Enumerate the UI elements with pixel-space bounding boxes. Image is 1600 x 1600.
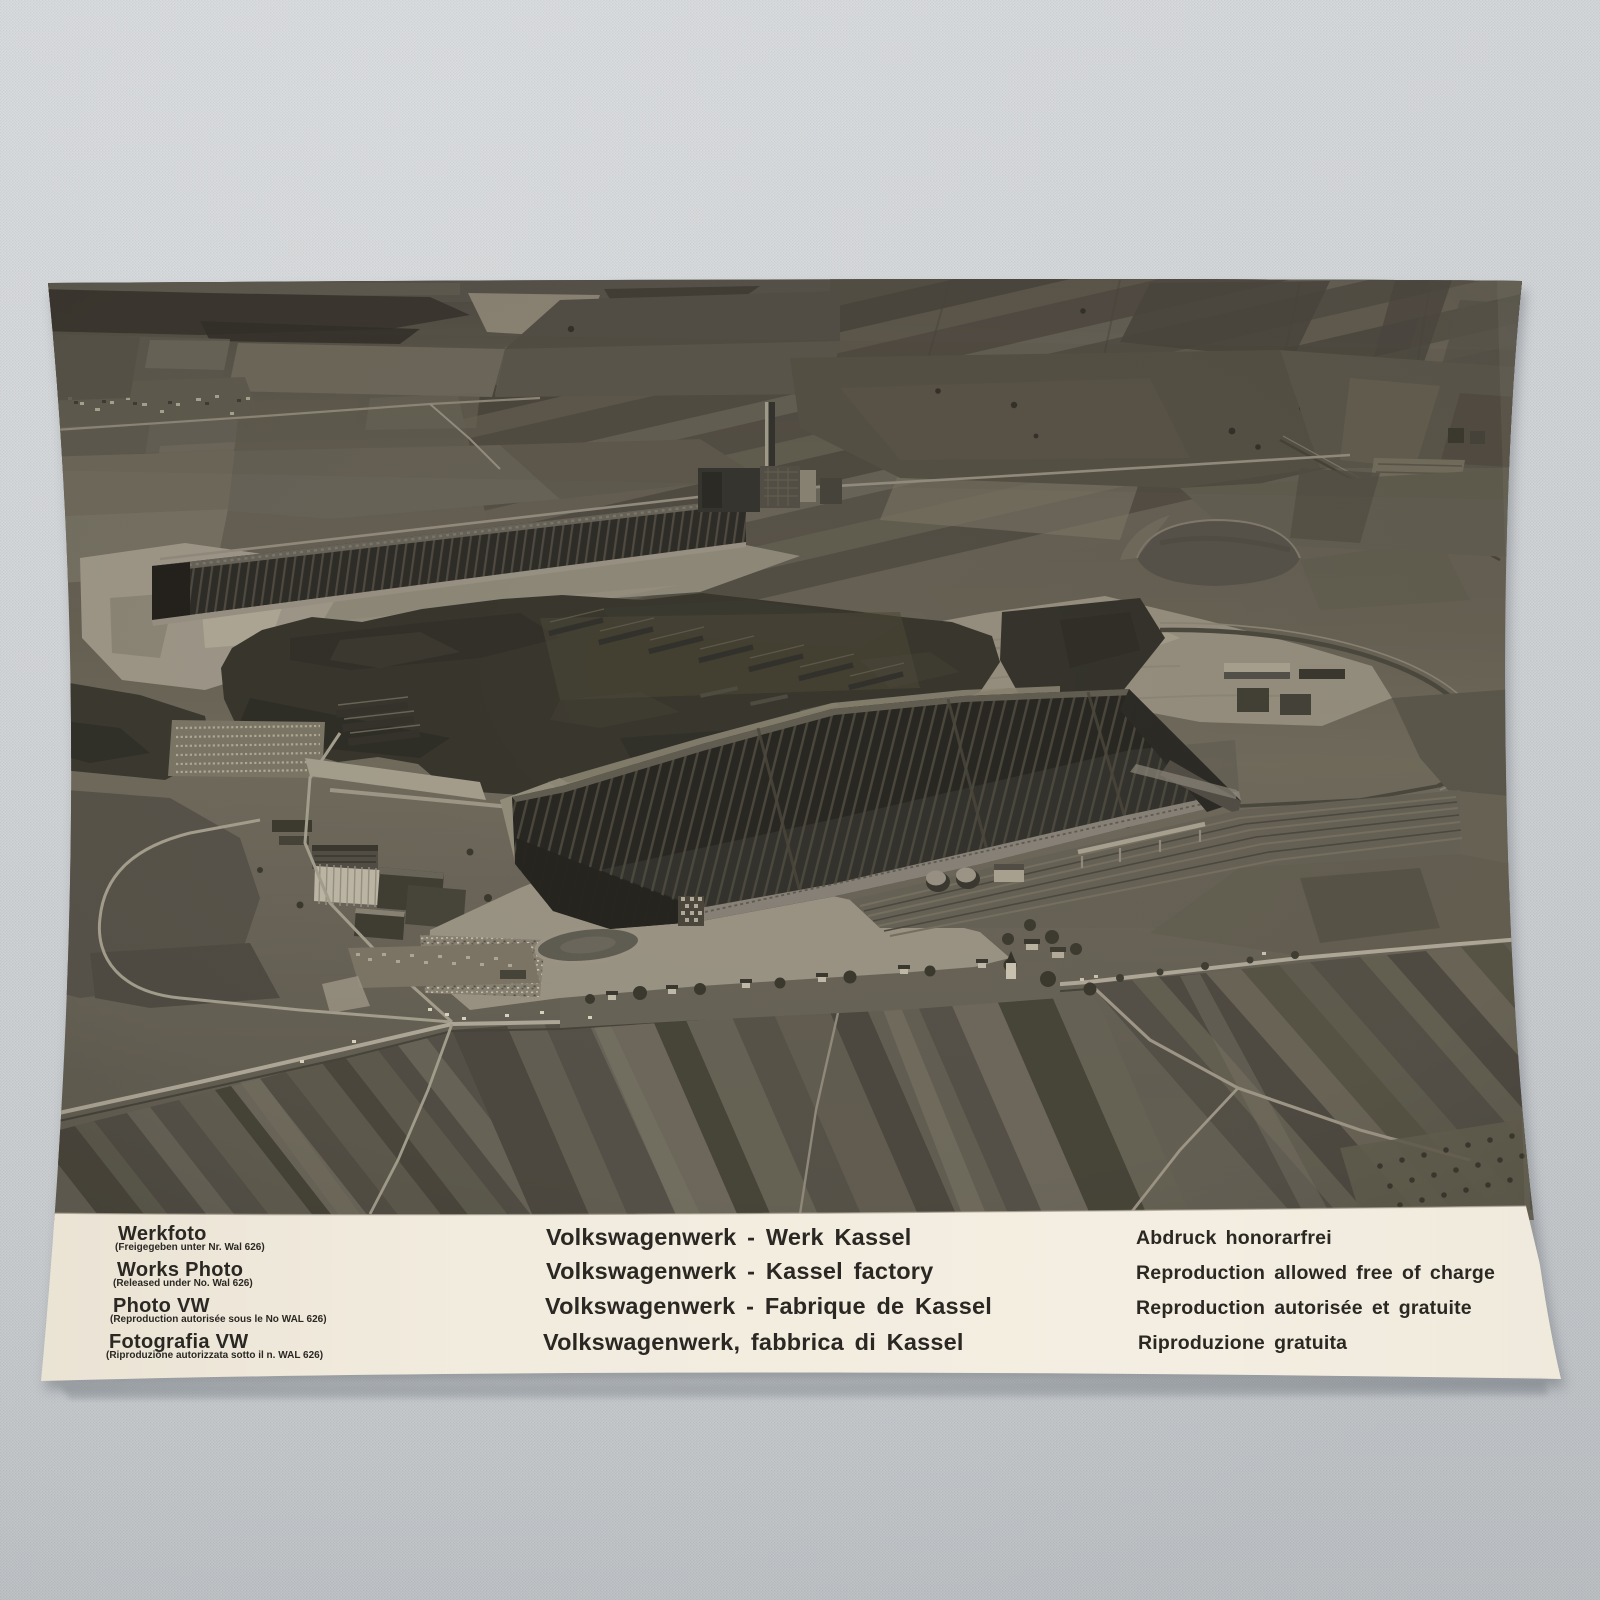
svg-text:Reproduction autorisée et grat: Reproduction autorisée et gratuite (1136, 1297, 1472, 1319)
svg-text:Reproduction allowed free of c: Reproduction allowed free of charge (1136, 1262, 1495, 1284)
svg-text:Volkswagenwerk - Werk Kassel: Volkswagenwerk - Werk Kassel (546, 1224, 911, 1250)
svg-text:(Released under No. Wal 626): (Released under No. Wal 626) (113, 1278, 253, 1289)
svg-text:Riproduzione gratuita: Riproduzione gratuita (1138, 1332, 1347, 1354)
svg-text:Volkswagenwerk - Fabrique de K: Volkswagenwerk - Fabrique de Kassel (545, 1293, 992, 1319)
svg-text:(Reproduction autorisée sous l: (Reproduction autorisée sous le No WAL 6… (110, 1314, 327, 1325)
svg-text:Volkswagenwerk, fabbrica di Ka: Volkswagenwerk, fabbrica di Kassel (543, 1329, 964, 1355)
svg-text:(Riproduzione autorizzata sott: (Riproduzione autorizzata sotto il n. WA… (106, 1350, 323, 1361)
svg-text:Abdruck honorarfrei: Abdruck honorarfrei (1136, 1227, 1332, 1249)
svg-text:(Freigegeben unter Nr. Wal 626: (Freigegeben unter Nr. Wal 626) (115, 1242, 265, 1253)
svg-text:Volkswagenwerk - Kassel factor: Volkswagenwerk - Kassel factory (546, 1258, 933, 1284)
